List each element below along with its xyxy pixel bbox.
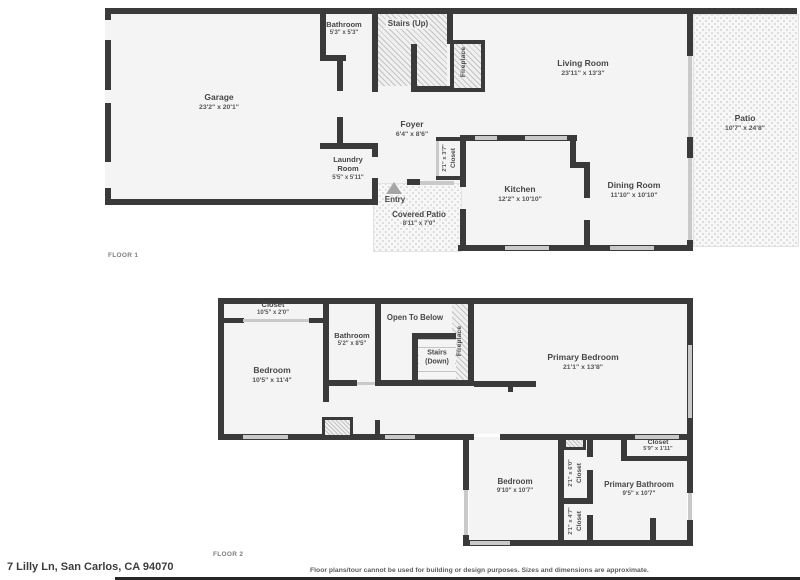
wall [381,380,474,386]
room-name: Primary Bathroom [604,480,674,490]
room-name: Living Room [557,58,608,69]
wall [375,420,380,435]
room-label-bathroom-f2: Bathroom 5'2" x 8'5" [334,331,369,348]
wall [218,298,693,304]
wall [411,86,453,92]
room-name: Bathroom [334,331,369,340]
room-name: Dining Room [608,180,661,191]
room-name: Foyer [396,119,428,130]
room-dims: 2'1" x 3'7" [442,144,450,172]
wall [587,515,593,546]
room-label-closet-v1: 2'1" x 6'0" Closet [568,459,584,487]
floor2-tag: FLOOR 2 [213,551,243,558]
room-dims: 5'9" x 1'11" [643,446,672,452]
wall [687,437,693,493]
window [610,246,654,250]
wall [372,8,378,92]
room-dims: 12'2" x 10'10" [498,195,542,204]
room-label-stairs-down: Stairs (Down) [419,348,455,368]
room-dims: 10'5" x 11'4" [252,376,292,385]
property-address: 7 Lilly Ln, San Carlos, CA 94070 [7,561,174,573]
room-name: Garage [199,92,239,103]
room-dims: 5'3" x 5'3" [326,29,361,37]
wall [372,143,378,157]
window [688,493,692,520]
room-label-garage: Garage 23'2" x 20'1" [199,92,239,112]
room-dims: 9'10" x 10'7" [497,487,533,495]
wall [687,240,693,251]
room-dims: 2'1" x 6'0" [568,459,576,487]
wall [323,298,329,402]
room-name: Open To Below [387,313,443,323]
wall [105,8,111,20]
room-label-bedroom-bottom: Bedroom 9'10" x 10'7" [497,477,533,495]
room-label-closet-f1: 2'1" x 3'7" Closet [442,144,458,172]
wall [105,103,111,162]
room-name: Patio [725,113,765,124]
room-label-open-to-below: Open To Below [387,313,443,323]
window [243,319,309,322]
room-name: Closet [643,439,672,446]
window [464,490,468,535]
room-name: Bedroom [497,477,533,487]
wall [463,437,469,490]
room-label-fireplace-f1: Fireplace [460,47,468,77]
wall [558,498,593,504]
room-name: Stairs (Up) [386,19,430,29]
room-dims: 9'5" x 10'7" [604,490,674,498]
room-dims: 6'4" x 8'6" [396,130,428,139]
wall [458,245,693,251]
floor1-tag: FLOOR 1 [108,252,138,259]
room-label-laundry: Laundry Room 5'5" x 5'11" [326,155,370,182]
wall [329,380,357,386]
wall [621,456,693,461]
wall [411,44,417,92]
room-label-kitchen: Kitchen 12'2" x 10'10" [498,184,542,204]
wall [508,387,513,392]
room-name: Closet [576,507,584,535]
wall [687,8,693,56]
room-label-primary-bathroom: Primary Bathroom 9'5" x 10'7" [604,480,674,498]
window [475,136,497,140]
wall [447,8,453,44]
wall [105,199,378,205]
room-name: Stairs (Down) [421,349,453,367]
room-label-living-room: Living Room 23'11" x 13'3" [557,58,608,78]
room-name: Entry [385,195,405,205]
window [688,158,692,240]
room-label-closet-top: Closet 10'5" x 2'0" [257,300,289,317]
room-label-stairs-up: Stairs (Up) [386,19,430,29]
wall [474,381,536,387]
room-dims: 23'11" x 13'3" [557,69,608,78]
room-name: Laundry Room [326,155,370,174]
room-dims: 8'11" x 7'0" [392,220,446,228]
window [688,345,692,418]
room-label-bathroom-f1: Bathroom 5'3" x 5'3" [326,20,361,37]
window [525,136,567,140]
window [385,435,415,439]
window [688,56,692,137]
wall [373,179,378,185]
wall [337,117,343,145]
room-name: Closet [450,144,458,172]
room-dims: 23'2" x 20'1" [199,103,239,112]
room-label-foyer: Foyer 6'4" x 8'6" [396,119,428,139]
window [420,181,454,185]
room-name: Bathroom [326,20,361,29]
wall [436,176,465,180]
wall [468,298,474,386]
wall [558,437,564,546]
wall [375,298,381,386]
window [505,246,549,250]
wall [407,179,420,185]
chimney-box [563,437,586,450]
room-dims: 10'7" x 24'8" [725,124,765,133]
chimney-box [322,417,353,438]
window [470,541,510,545]
room-label-dining-room: Dining Room 11'10" x 10'10" [608,180,661,200]
room-label-patio: Patio 10'7" x 24'8" [725,113,765,133]
room-name: Fireplace [456,326,464,356]
entry-arrow-icon [386,182,402,194]
wall [687,137,693,158]
room-name: Bedroom [252,365,292,376]
window [436,141,439,176]
room-name: Kitchen [498,184,542,195]
room-dims: 5'2" x 8'5" [334,340,369,348]
floor-plan-page: Garage 23'2" x 20'1" Bathroom 5'3" x 5'3… [0,0,800,580]
wall [461,137,465,180]
window [243,435,288,439]
room-dims: 21'1" x 13'8" [547,363,618,372]
room-label-covered-patio: Covered Patio 8'11" x 7'0" [392,210,446,228]
wall [687,520,693,546]
wall [105,40,111,90]
room-label-closet-v2: 2'1" x 4'7" Closet [568,507,584,535]
wall [587,437,593,457]
room-dims: 2'1" x 4'7" [568,507,576,535]
wall [218,318,244,323]
room-name: Primary Bedroom [547,352,618,363]
room-label-fireplace-f2: Fireplace [456,326,464,356]
window [357,382,375,385]
room-name: Fireplace [460,47,468,77]
room-name: Closet [257,300,289,309]
wall [584,162,590,198]
wall [650,518,656,546]
wall [337,61,343,91]
room-label-closet-right: Closet 5'9" x 1'11" [643,439,672,453]
room-label-primary-bedroom: Primary Bedroom 21'1" x 13'8" [547,352,618,372]
wall [320,143,378,149]
room-name: Closet [576,459,584,487]
room-dims: 5'5" x 5'11" [326,174,370,182]
room-name: Covered Patio [392,210,446,220]
room-label-bedroom-left: Bedroom 10'5" x 11'4" [252,365,292,385]
room-dims: 10'5" x 2'0" [257,309,289,317]
wall [320,8,326,60]
disclaimer-text: Floor plans/tour cannot be used for buil… [310,567,649,574]
room-label-entry: Entry [385,195,405,205]
room-dims: 11'10" x 10'10" [608,191,661,200]
